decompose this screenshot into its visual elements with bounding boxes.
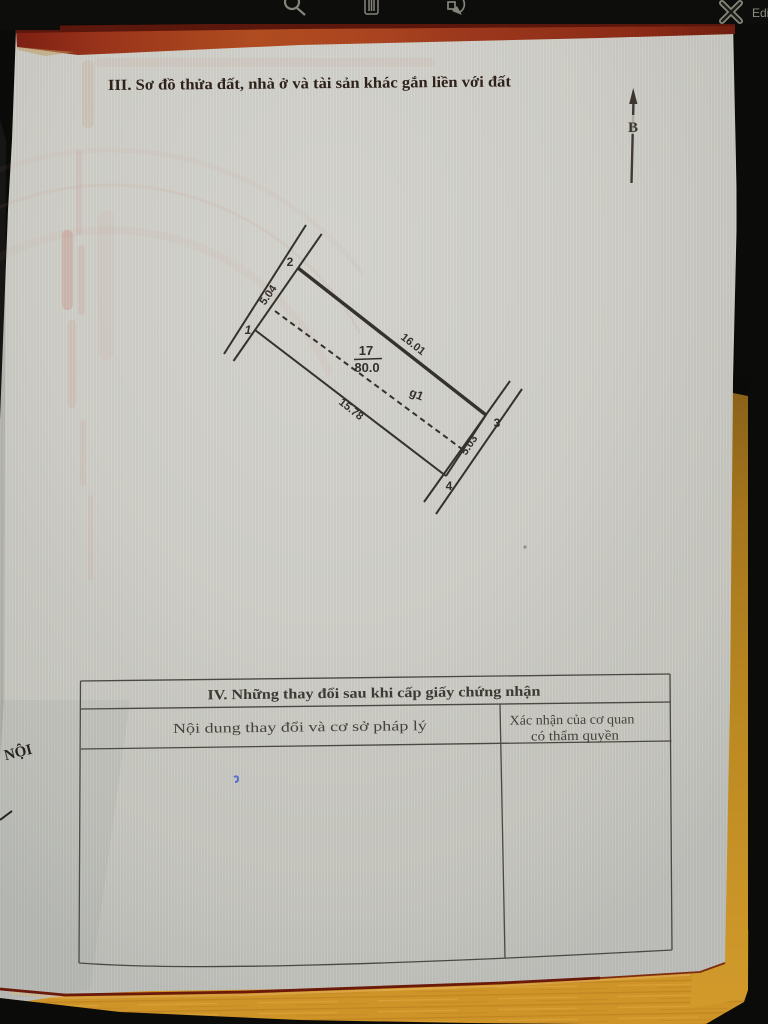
svg-text:Nội dung thay đổi và cơ sở phá: Nội dung thay đổi và cơ sở pháp lý — [173, 718, 427, 736]
svg-text:B: B — [628, 120, 638, 136]
svg-text:Xác nhận của cơ quan: Xác nhận của cơ quan — [509, 711, 634, 727]
svg-text:2: 2 — [287, 255, 294, 269]
svg-text:có thẩm quyền: có thẩm quyền — [531, 727, 619, 743]
svg-text:80.0: 80.0 — [354, 360, 379, 375]
svg-text:III. Sơ đồ thửa đất, nhà ở và: III. Sơ đồ thửa đất, nhà ở và tài sản kh… — [108, 73, 512, 94]
svg-text:3: 3 — [494, 416, 501, 430]
svg-text:1: 1 — [245, 323, 252, 337]
svg-text:17: 17 — [359, 343, 373, 358]
svg-text:Edi: Edi — [752, 6, 768, 20]
svg-text:4: 4 — [446, 479, 453, 493]
